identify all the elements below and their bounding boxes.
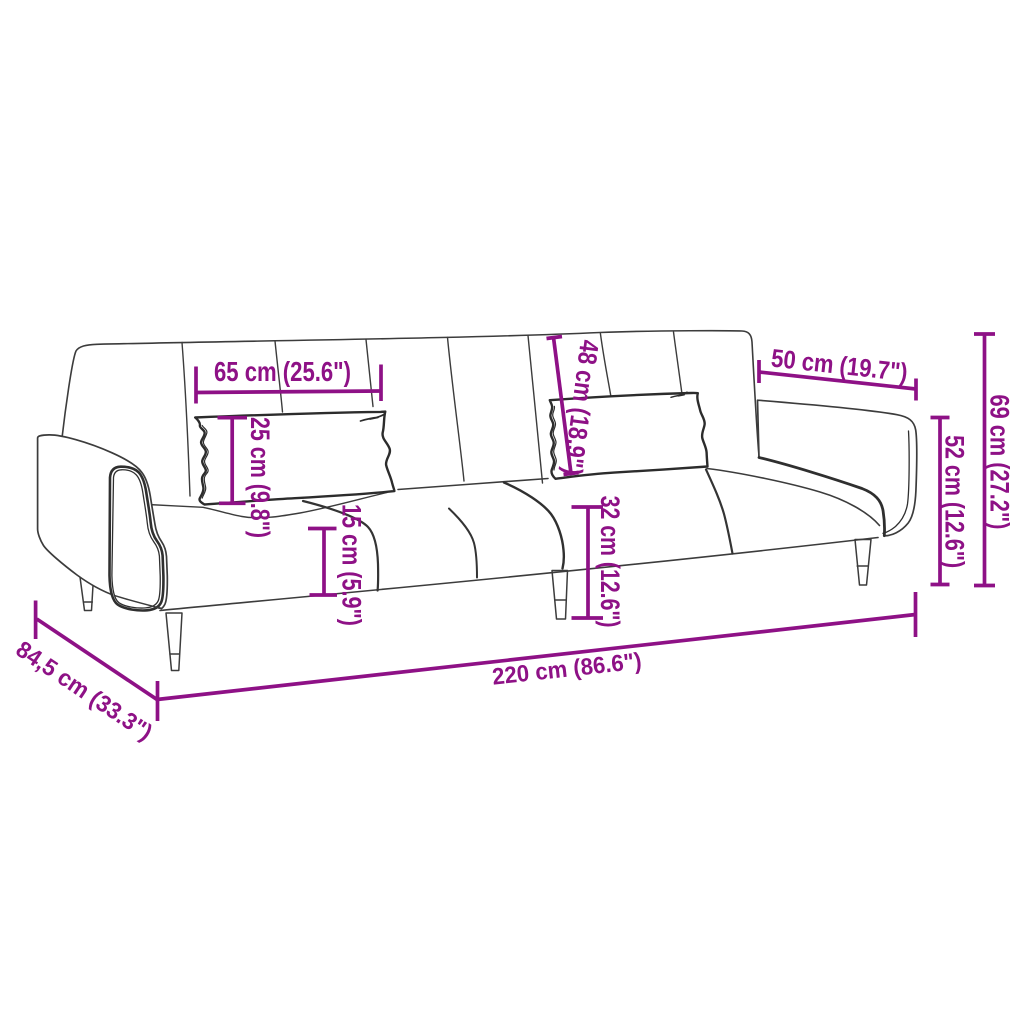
svg-text:65 cm (25.6"): 65 cm (25.6")	[214, 356, 351, 387]
svg-text:52 cm (12.6"): 52 cm (12.6")	[940, 435, 970, 568]
svg-text:25 cm (9.8"): 25 cm (9.8")	[245, 417, 275, 538]
svg-text:32 cm (12.6"): 32 cm (12.6")	[595, 496, 625, 628]
svg-text:69 cm (27.2"): 69 cm (27.2")	[985, 395, 1015, 530]
svg-text:15 cm (5.9"): 15 cm (5.9")	[337, 504, 367, 626]
